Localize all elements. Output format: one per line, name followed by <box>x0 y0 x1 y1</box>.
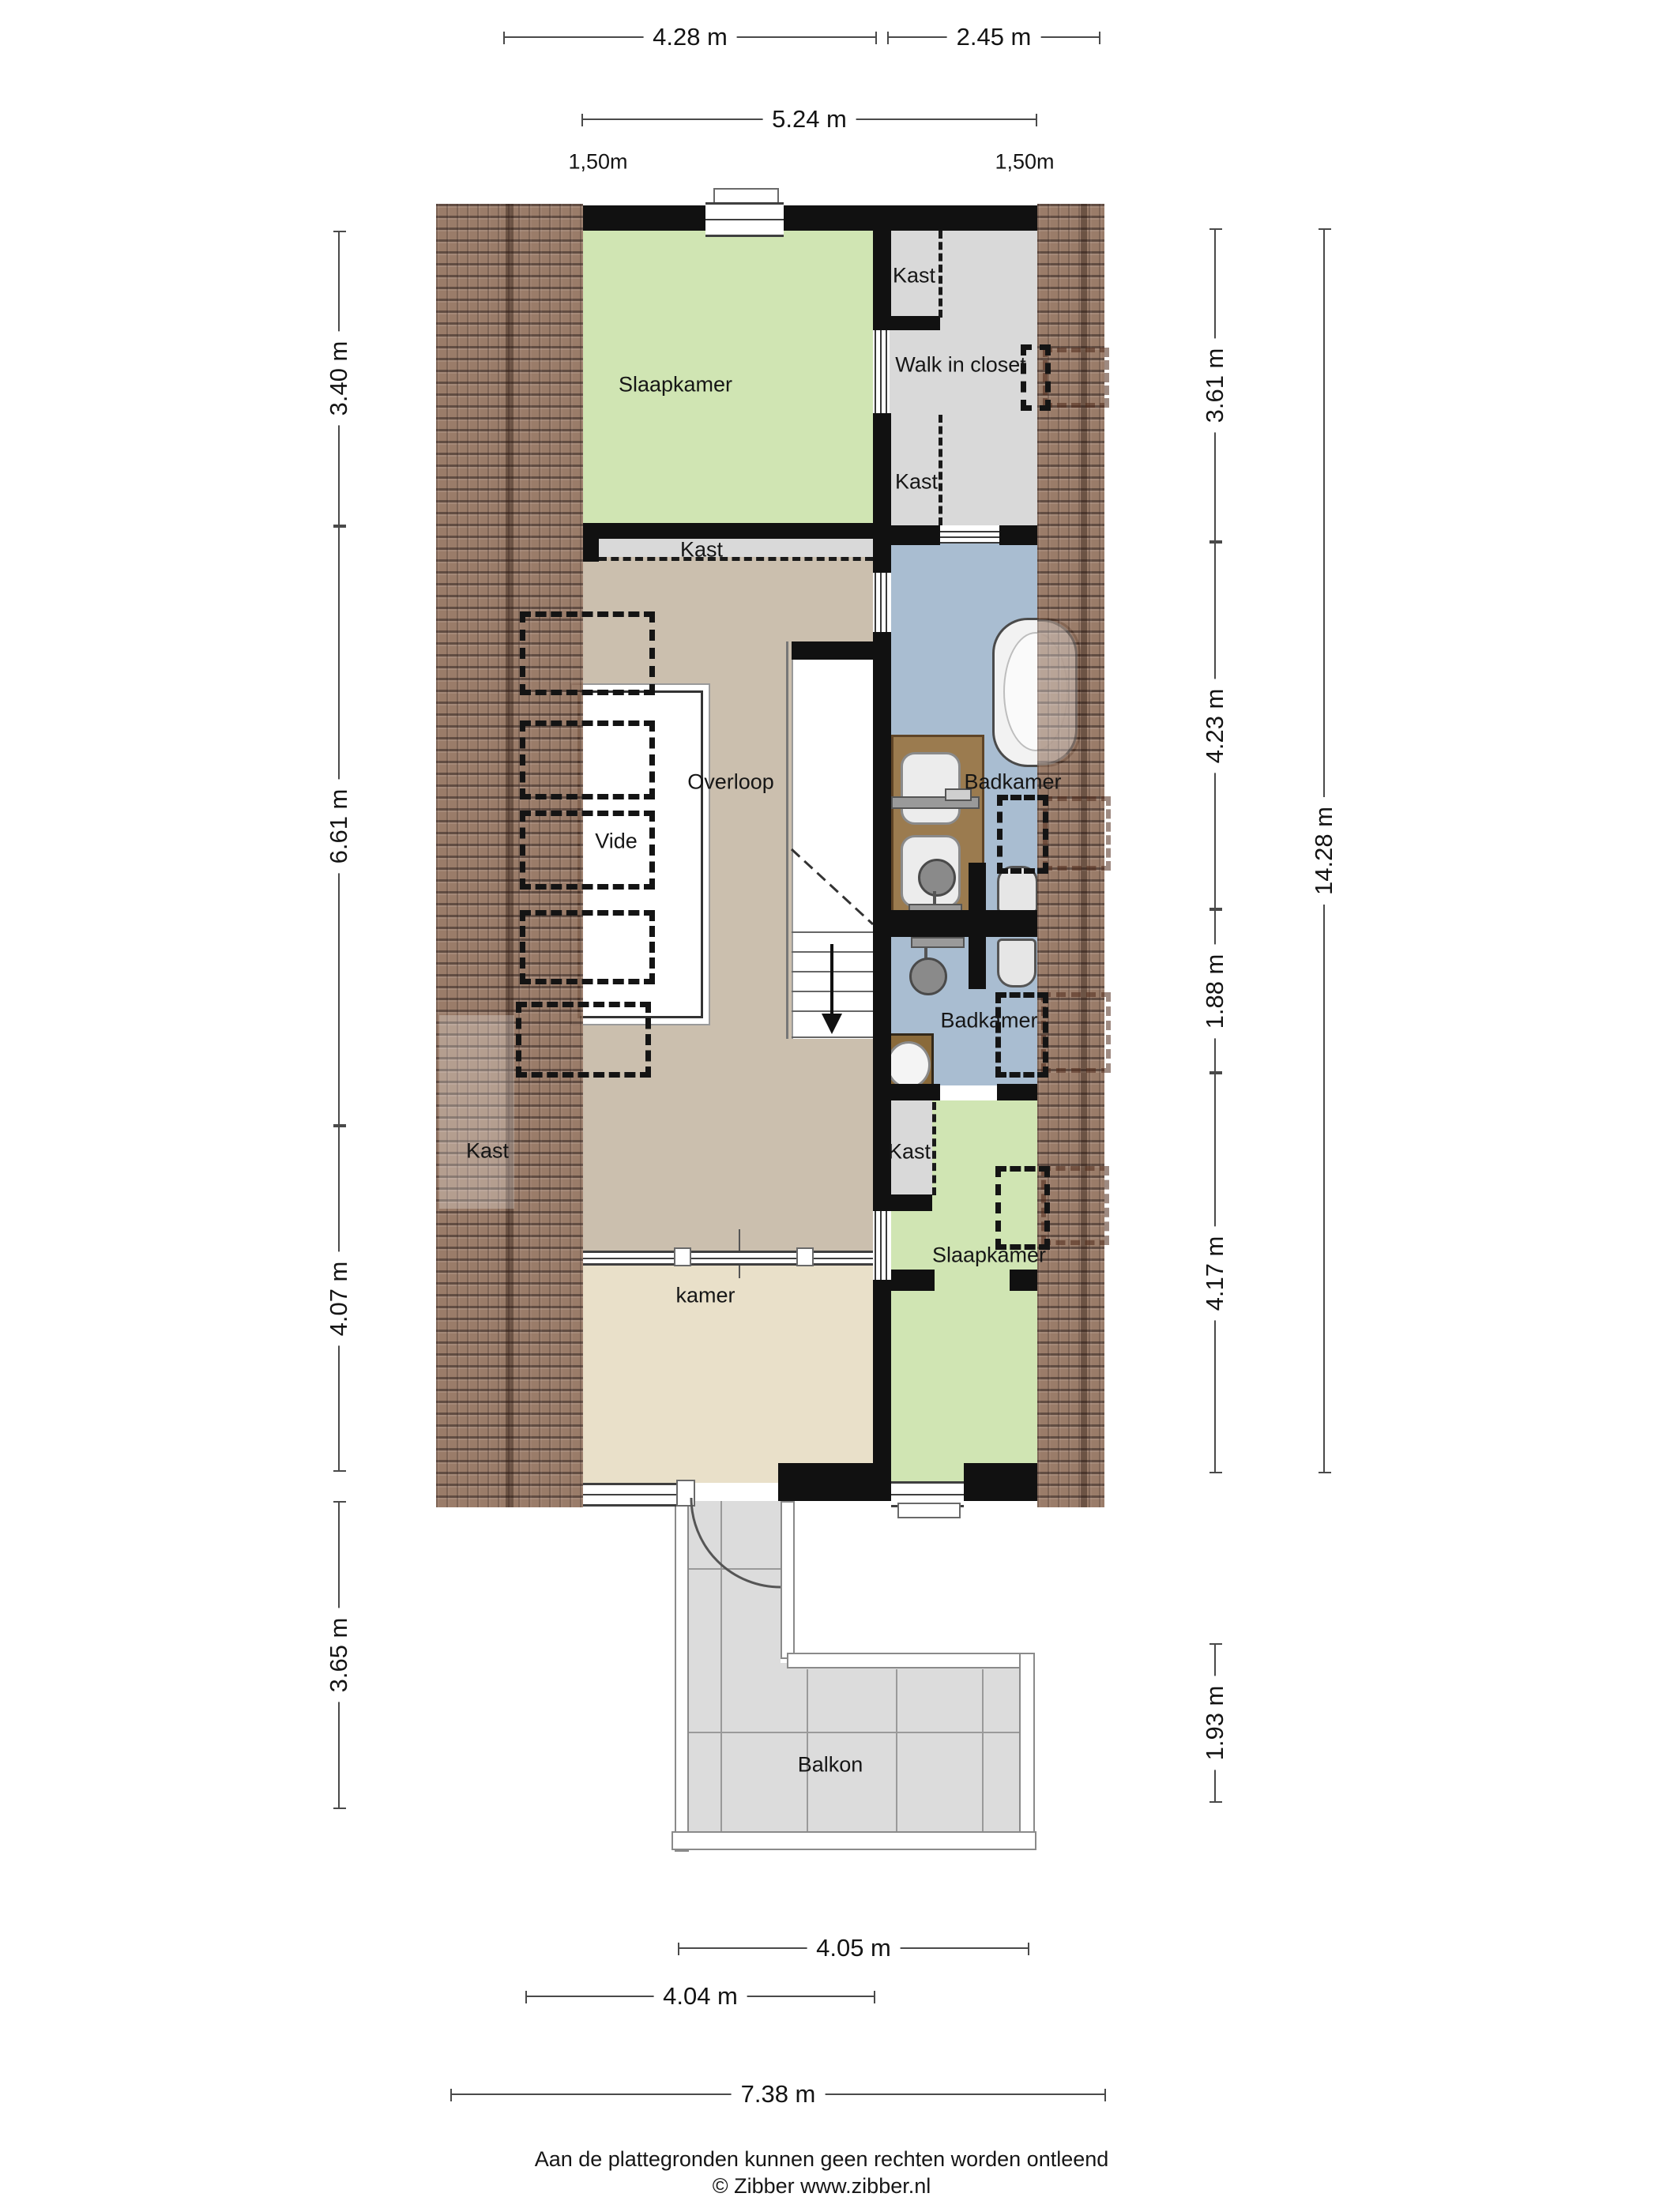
skylight <box>520 720 655 799</box>
balkon-main-floor <box>687 1663 1019 1831</box>
skylight-roof-faint <box>1041 1166 1109 1245</box>
dim-top-524: 5.24 m <box>581 118 1037 120</box>
balkon-tile-line <box>807 1669 808 1831</box>
wall <box>873 316 940 330</box>
kast-dashed-edge <box>939 415 942 525</box>
wall <box>873 1194 932 1211</box>
wall <box>969 863 986 989</box>
washbasin-icon <box>886 1041 931 1089</box>
room-label-kamer: kamer <box>675 1284 735 1308</box>
wall <box>873 525 940 545</box>
skylight-roof-faint <box>1043 348 1109 408</box>
roof-kast-patch <box>439 1015 514 1209</box>
dim-bottom-738: 7.38 m <box>450 2093 1106 2095</box>
wall <box>583 205 707 231</box>
room-label-walk-in-closet: Walk in closet <box>895 353 1026 378</box>
kast-dashed-edge <box>932 1102 936 1195</box>
dim-right-361: 3.61 m <box>1214 228 1216 542</box>
skylight <box>995 992 1048 1078</box>
wall <box>583 523 873 539</box>
dim-right-193: 1.93 m <box>1214 1643 1216 1803</box>
dim-bottom-404: 4.04 m <box>525 1996 875 1997</box>
footer-disclaimer: Aan de plattegronden kunnen geen rechten… <box>0 2147 1651 2172</box>
balkon-rail-left <box>675 1501 689 1852</box>
balkon-tile-line <box>687 1732 1019 1733</box>
dim-label: 4.05 m <box>807 1934 901 1962</box>
dim-top-245: 2.45 m <box>887 36 1100 38</box>
dim-label-150-right: 1,50m <box>995 150 1054 175</box>
dim-label: 6.61 m <box>325 779 353 873</box>
balkon-rail-right-corridor <box>781 1501 795 1659</box>
dim-left-340: 3.40 m <box>338 231 340 526</box>
room-label-kast-small: Kast <box>888 1140 931 1164</box>
wall <box>1010 1270 1037 1291</box>
dim-label: 1.88 m <box>1201 944 1229 1038</box>
glass-wall-post <box>796 1247 814 1266</box>
skylight <box>520 910 655 984</box>
kast-dashed-edge <box>599 557 873 561</box>
dim-label: 3.40 m <box>325 332 353 426</box>
dim-left-661: 6.61 m <box>338 526 340 1126</box>
dim-left-365: 3.65 m <box>338 1501 340 1809</box>
shower-head-icon <box>909 957 947 995</box>
balkon-rail-right <box>1019 1653 1035 1845</box>
dim-bottom-405: 4.05 m <box>678 1947 1029 1949</box>
footer-credit: © Zibber www.zibber.nl <box>0 2174 1651 2199</box>
wall <box>891 1270 935 1291</box>
stairs-icon <box>792 660 873 1039</box>
dim-right-188: 1.88 m <box>1214 909 1216 1073</box>
room-label-balkon: Balkon <box>798 1753 863 1777</box>
room-label-badkamer-bottom: Badkamer <box>940 1009 1037 1033</box>
dim-label: 4.07 m <box>325 1252 353 1346</box>
dim-label: 3.65 m <box>325 1608 353 1702</box>
balkon-tile-line <box>982 1669 984 1831</box>
wall <box>997 1084 1037 1100</box>
room-label-slaapkamer-top: Slaapkamer <box>619 373 732 397</box>
floorplan-canvas: Slaapkamer Kast Walk in closet Kast Kast… <box>0 0 1659 2212</box>
room-label-kast-mid: Kast <box>895 470 938 495</box>
wall <box>782 205 1037 231</box>
dim-label: 2.45 m <box>947 23 1041 51</box>
door-arc-balkon <box>691 1498 781 1587</box>
toilet-icon <box>997 939 1036 987</box>
dim-label: 4.23 m <box>1201 679 1229 773</box>
skylight <box>995 1166 1050 1250</box>
shower-valve <box>911 937 965 948</box>
wall <box>964 1463 1037 1501</box>
skylight <box>520 611 655 695</box>
stair-left-rail <box>786 641 788 1039</box>
room-label-vide: Vide <box>595 829 638 854</box>
wall <box>873 1084 940 1100</box>
room-label-kast-roof: Kast <box>466 1139 509 1164</box>
dim-label: 14.28 m <box>1310 797 1338 905</box>
glass-wall-kamer <box>583 1251 873 1266</box>
dim-label: 1.93 m <box>1201 1676 1229 1770</box>
balkon-rail-top <box>787 1653 1025 1668</box>
shower-head-icon <box>918 859 956 897</box>
wall <box>583 523 599 562</box>
dim-top-428: 4.28 m <box>503 36 877 38</box>
skylight-roof-faint <box>1041 992 1111 1073</box>
wall <box>873 413 891 573</box>
door-slaapkamer-bottom <box>875 1211 890 1280</box>
door-walkincloset <box>875 330 890 413</box>
dim-left-407: 4.07 m <box>338 1126 340 1472</box>
dim-label: 4.17 m <box>1201 1226 1229 1320</box>
dim-label: 3.61 m <box>1201 338 1229 432</box>
dim-label: 7.38 m <box>732 2080 826 2109</box>
room-label-slaapkamer-bottom: Slaapkamer <box>932 1243 1046 1268</box>
room-label-kast-band: Kast <box>680 538 723 562</box>
window-bottom-left <box>583 1483 678 1507</box>
room-label-kast-top: Kast <box>893 264 935 288</box>
wall <box>792 641 877 660</box>
wall <box>873 229 891 330</box>
window-top <box>705 202 784 237</box>
dim-label: 5.24 m <box>762 105 856 134</box>
window-sill <box>897 1503 961 1518</box>
kast-dashed-edge <box>939 231 942 318</box>
bathtub-ghost <box>1037 619 1078 766</box>
dim-right-417: 4.17 m <box>1214 1073 1216 1473</box>
room-label-badkamer-top: Badkamer <box>964 770 1061 795</box>
glass-wall-post <box>674 1247 691 1266</box>
wall <box>873 910 1037 937</box>
skylight <box>516 1002 651 1078</box>
door-badkamer <box>875 573 890 632</box>
balkon-tile-line <box>896 1669 897 1831</box>
skylight-roof-faint <box>1043 796 1111 871</box>
skylight <box>997 795 1048 874</box>
dim-label-150-left: 1,50m <box>568 150 627 175</box>
dim-right-423: 4.23 m <box>1214 542 1216 909</box>
wall <box>778 1463 891 1501</box>
wall <box>999 525 1037 545</box>
roof-ridge <box>506 204 513 1507</box>
balkon-rail-bottom <box>671 1831 1036 1850</box>
dim-label: 4.04 m <box>653 1982 747 2011</box>
dim-right-1428: 14.28 m <box>1323 228 1325 1473</box>
dim-label: 4.28 m <box>643 23 737 51</box>
room-label-overloop: Overloop <box>687 770 774 795</box>
door-wic-badkamer <box>940 527 999 544</box>
wall <box>873 1280 891 1463</box>
